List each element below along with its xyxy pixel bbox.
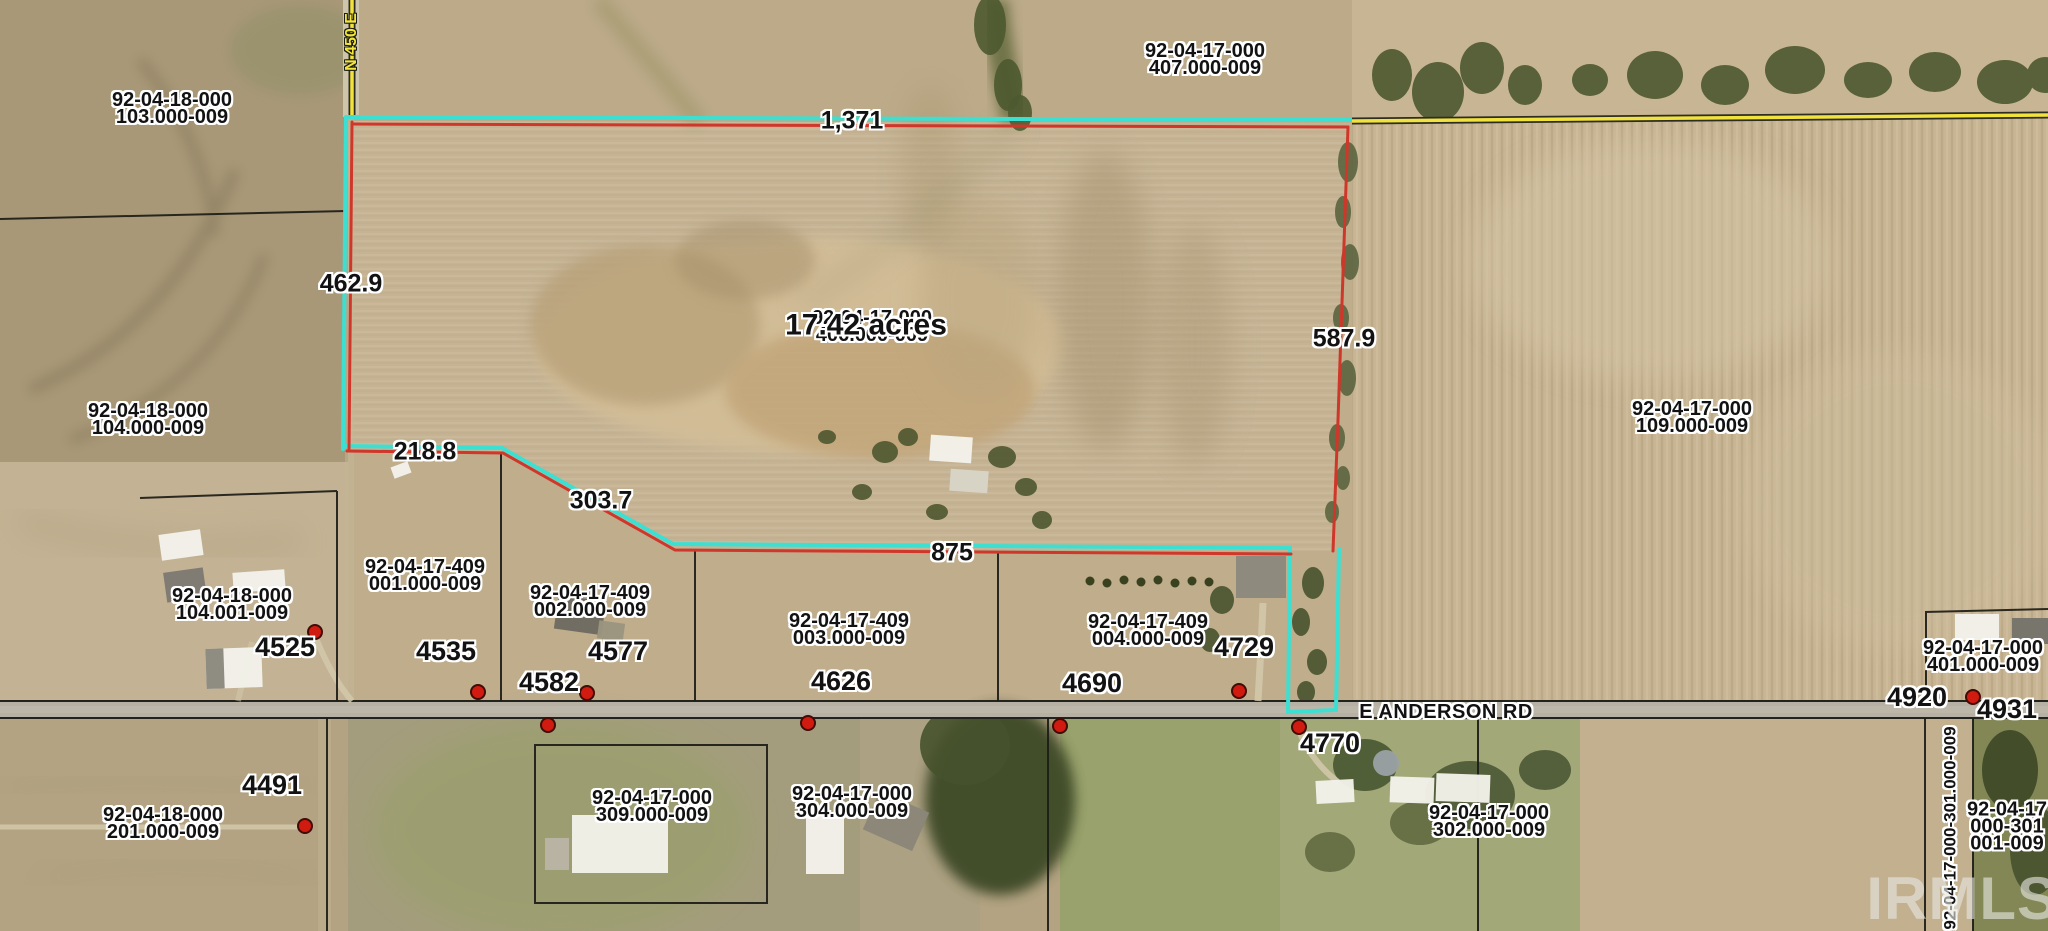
address-dot[interactable]	[470, 684, 486, 700]
parcel-label: 92-04-17000-301001-009	[1967, 802, 2047, 853]
address-dot[interactable]	[297, 818, 313, 834]
parcel-label: 92-04-17-000407.000-009	[1145, 43, 1265, 77]
parcel-label: 92-04-18-000104.001-009	[172, 588, 292, 622]
address-label: 4626	[811, 668, 871, 696]
address-label: 4535	[416, 638, 476, 666]
parcel-aerial-map: 92-04-18-000103.000-009 92-04-17-000407.…	[0, 0, 2048, 931]
parcel-label: 92-04-17-000401.000-009	[1923, 640, 2043, 674]
parcel-label: 92-04-17-000309.000-009	[592, 790, 712, 824]
address-dot[interactable]	[1052, 718, 1068, 734]
address-dot[interactable]	[540, 717, 556, 733]
parcel-label: 92-04-17-409002.000-009	[530, 585, 650, 619]
address-label: 4931	[1977, 696, 2037, 724]
aerial-basemap	[0, 0, 2048, 931]
dimension-south-a: 218.8	[394, 439, 457, 465]
address-label: 4729	[1214, 634, 1274, 662]
parcel-label: 92-04-17-000109.000-009	[1632, 401, 1752, 435]
address-dot[interactable]	[1231, 683, 1247, 699]
address-dot[interactable]	[579, 685, 595, 701]
dimension-east: 587.9	[1313, 326, 1376, 352]
road-label-e-anderson: E ANDERSON RD	[1359, 702, 1533, 722]
road-label-n450e: N 450 E	[344, 13, 360, 71]
parcel-label: 92-04-17-409003.000-009	[789, 613, 909, 647]
parcel-label: 92-04-17-000304.000-009	[792, 786, 912, 820]
address-label: 4577	[588, 638, 648, 666]
dimension-north: 1,371	[821, 108, 884, 134]
parcel-label: 92-04-17-409001.000-009	[365, 559, 485, 593]
parcel-label: 92-04-18-000103.000-009	[112, 92, 232, 126]
parcel-label: 92-04-18-000104.000-009	[88, 403, 208, 437]
address-label: 4491	[242, 772, 302, 800]
subject-parcel-acreage: 17.42 acres	[785, 311, 947, 342]
address-label: 4690	[1062, 670, 1122, 698]
dimension-south-c: 875	[931, 540, 973, 566]
parcel-label: 92-04-17-409004.000-009	[1088, 614, 1208, 648]
parcel-label: 92-04-17-000302.000-009	[1429, 805, 1549, 839]
parcel-label: 92-04-18-000201.000-009	[103, 807, 223, 841]
address-label: 4525	[255, 634, 315, 662]
address-label: 4920	[1887, 684, 1947, 712]
address-label: 4770	[1300, 730, 1360, 758]
address-dot[interactable]	[800, 715, 816, 731]
dimension-west: 462.9	[320, 271, 383, 297]
mls-watermark: IRMLS	[1866, 864, 2048, 931]
dimension-south-b: 303.7	[570, 488, 633, 514]
address-label: 4582	[519, 669, 579, 697]
